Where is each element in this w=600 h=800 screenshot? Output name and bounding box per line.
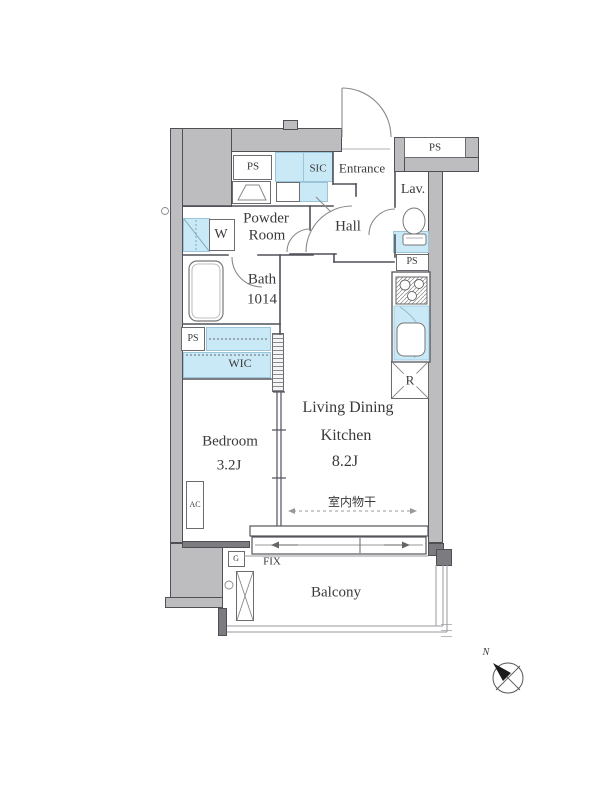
label-hall: Hall	[335, 220, 361, 235]
wall-bottom-left-step	[165, 597, 223, 608]
label-kitchen: Kitchen	[321, 428, 372, 444]
wall-ps-bottom-band	[404, 157, 479, 172]
label-bedroom-size: 3.2J	[217, 459, 242, 474]
label-fix: FIX	[263, 557, 281, 568]
label-wic: WIC	[228, 357, 251, 369]
label-ldk-size: 8.2J	[332, 454, 358, 470]
label-lav: Lav.	[401, 183, 425, 197]
balcony-hatch-box	[236, 571, 254, 621]
floor-plan: PS PS SIC Entrance Lav. Powder Room W Ha…	[0, 0, 600, 800]
label-powder-1: Powder	[243, 212, 289, 227]
legend-line-1	[441, 624, 452, 625]
sic-shelf-a	[275, 152, 304, 182]
sic-shelf-d	[276, 182, 300, 202]
wall-top-bump	[283, 120, 298, 130]
wic-shelf-lower	[183, 352, 271, 378]
label-ps-wic: PS	[187, 334, 198, 344]
label-bath-2: 1014	[247, 293, 277, 308]
wic-folding-door	[272, 333, 284, 392]
linework-overlay	[0, 0, 600, 800]
label-g: G	[233, 555, 239, 563]
legend-line-3	[441, 636, 452, 637]
kitchen-icon	[392, 272, 430, 362]
label-ps-top-left: PS	[247, 162, 259, 173]
legend-line-2	[441, 630, 452, 631]
vanity-box	[232, 181, 271, 204]
window-band	[250, 526, 428, 554]
entrance-door-arc	[342, 88, 391, 137]
label-bath-1: Bath	[248, 273, 276, 288]
label-laundry: 室内物干	[328, 496, 376, 508]
wall-bottom-left-block	[170, 543, 223, 605]
label-sic: SIC	[309, 164, 326, 175]
label-north: N	[483, 648, 490, 658]
lav-counter	[393, 231, 429, 253]
label-balcony: Balcony	[311, 586, 361, 601]
washer-pan	[183, 218, 210, 252]
wall-right	[428, 170, 443, 543]
wall-right-chunk-b	[436, 549, 452, 566]
wall-bedroom-bottom	[182, 541, 250, 548]
label-bedroom: Bedroom	[202, 435, 258, 450]
label-r: R	[404, 374, 417, 387]
lav-door-arc	[369, 209, 395, 235]
label-w: W	[214, 228, 227, 242]
wall-balcony-left-strip	[218, 608, 227, 636]
bathtub-icon	[189, 261, 223, 321]
wic-shelf-upper	[206, 327, 271, 351]
label-entrance: Entrance	[339, 162, 385, 175]
label-ps-top-right: PS	[429, 143, 441, 154]
label-ps-kitchen: PS	[406, 257, 417, 267]
bedroom-ldk-partition	[272, 392, 286, 541]
label-ac: AC	[189, 501, 200, 509]
label-powder-2: Room	[249, 229, 286, 244]
powder-door-arc	[287, 229, 310, 252]
compass-icon	[493, 663, 523, 693]
label-living-dining: Living Dining	[302, 400, 393, 416]
sic-shelf-c	[299, 182, 328, 202]
